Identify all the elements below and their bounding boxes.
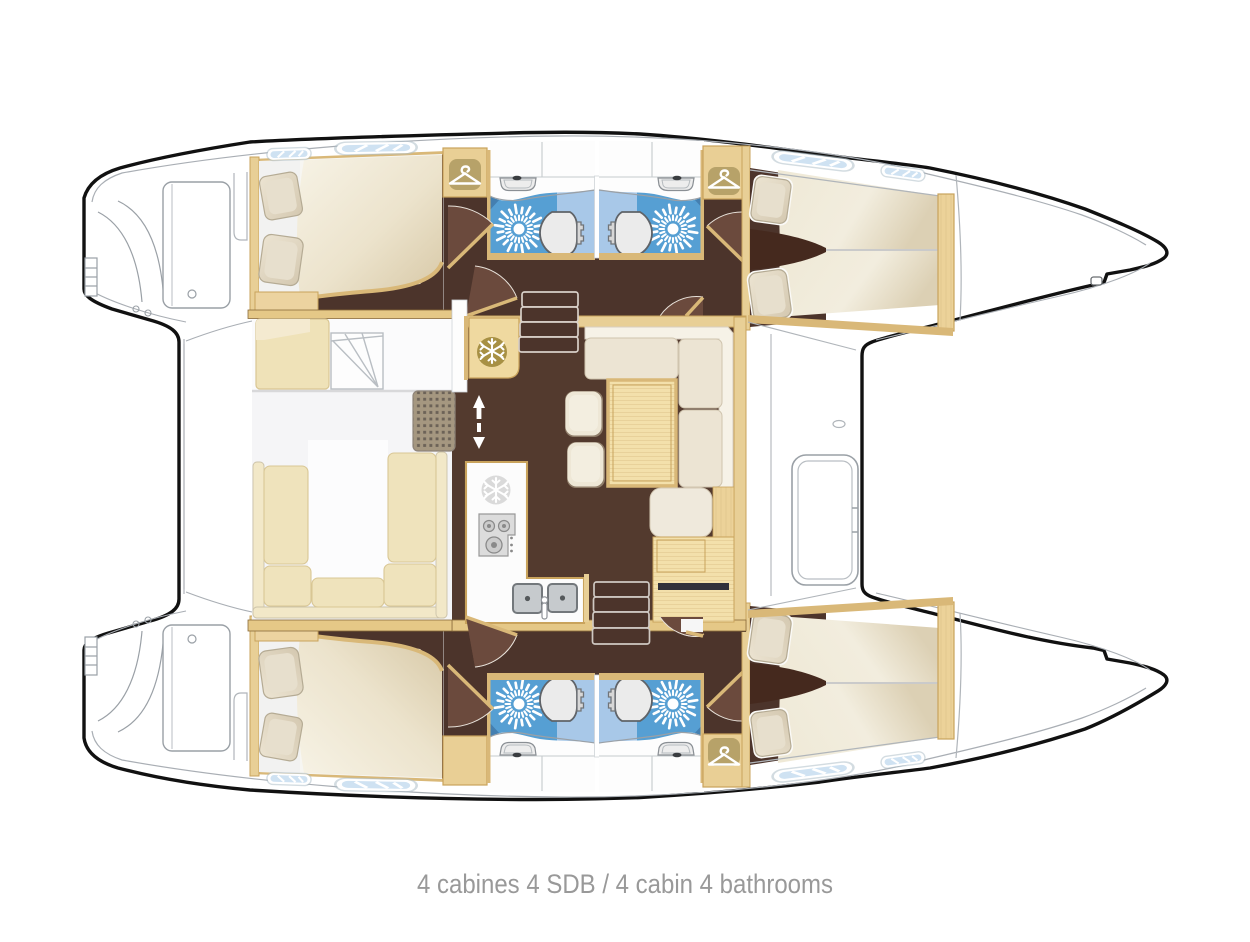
svg-text:4 cabines 4 SDB / 4 cabin 4 ba: 4 cabines 4 SDB / 4 cabin 4 bathrooms xyxy=(417,869,833,899)
